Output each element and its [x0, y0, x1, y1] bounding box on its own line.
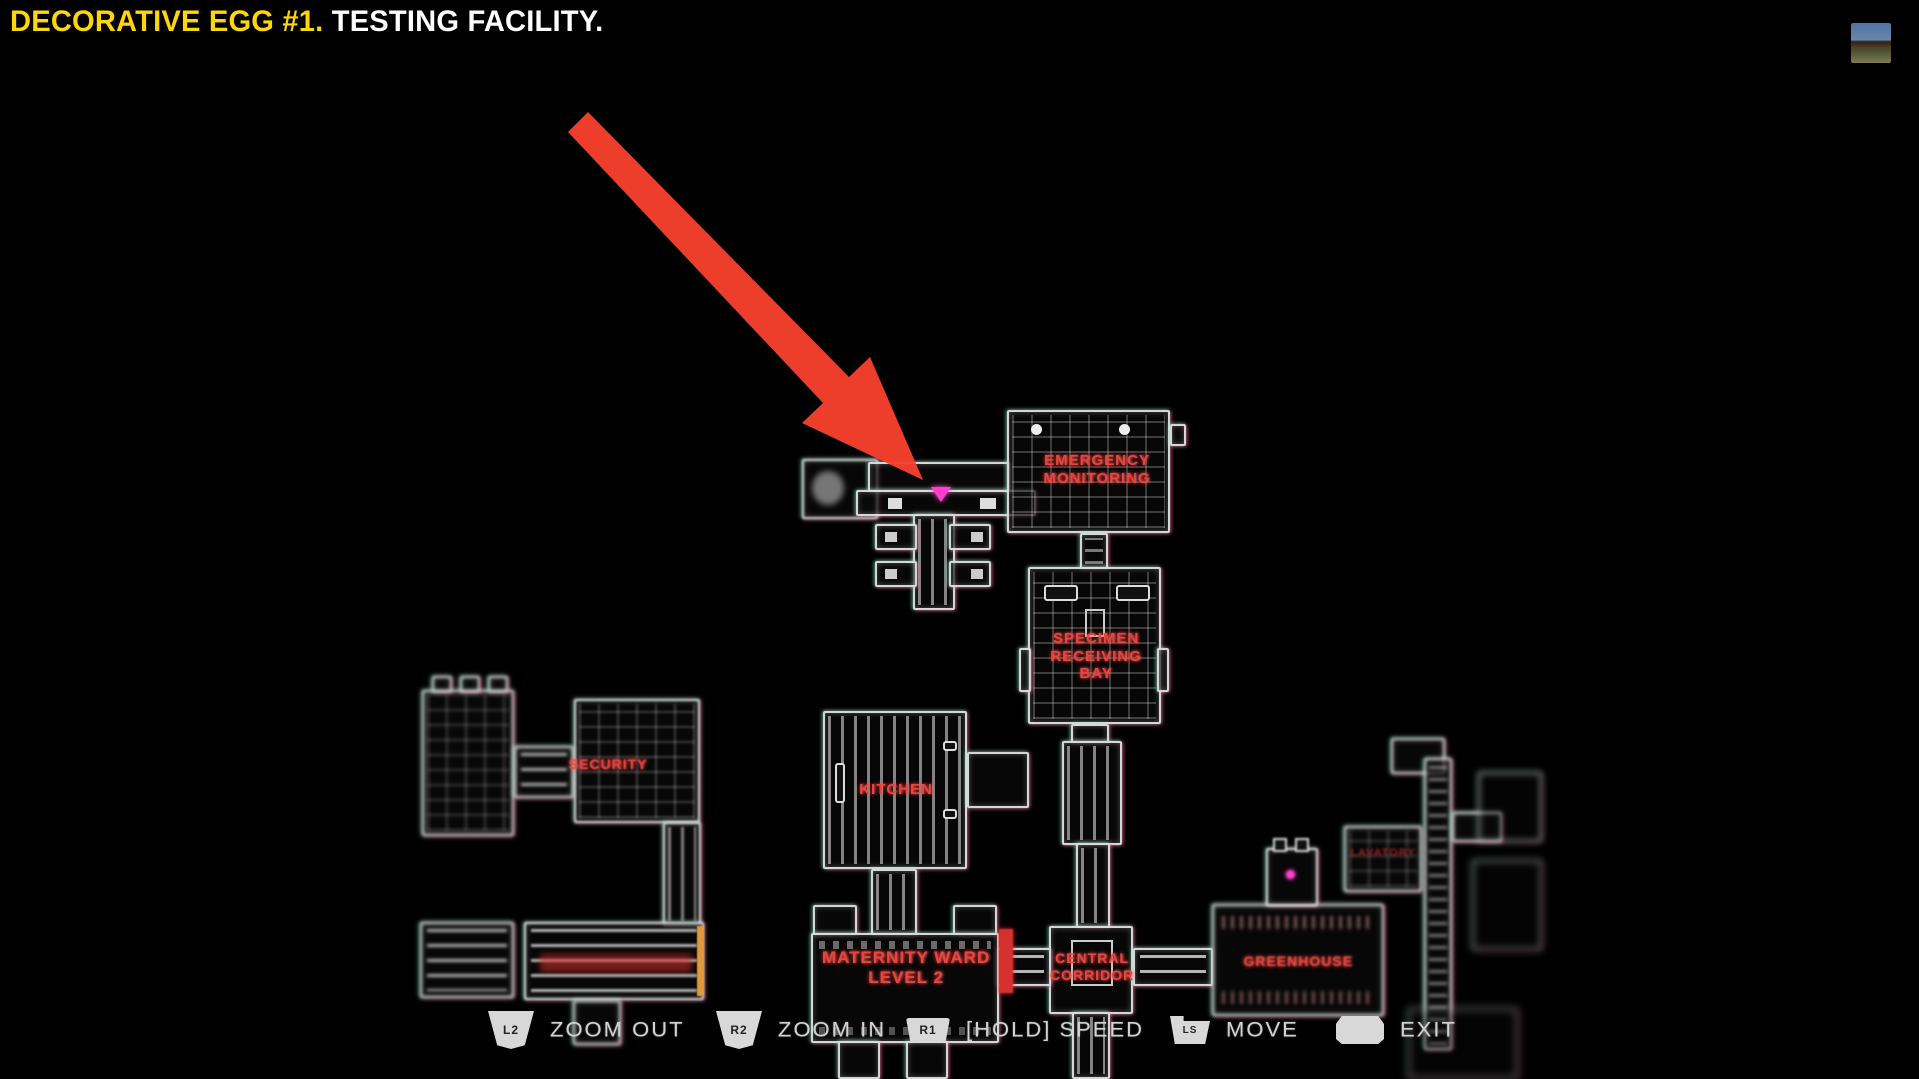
l2-trigger-icon: L2 — [488, 1011, 534, 1049]
hint-label: EXIT — [1400, 1018, 1457, 1043]
picture-in-picture-thumbnail — [1851, 23, 1891, 63]
hint-hold-speed: R1 [HOLD] SPEED — [906, 1008, 1144, 1052]
hint-zoom-out: L2 ZOOM OUT — [488, 1008, 685, 1052]
hint-label: MOVE — [1226, 1018, 1299, 1043]
hint-label: ZOOM IN — [778, 1018, 886, 1043]
touchpad-icon — [1336, 1016, 1384, 1044]
hint-move: LS MOVE — [1170, 1008, 1299, 1052]
r1-bumper-icon: R1 — [906, 1018, 950, 1042]
hint-exit: EXIT — [1336, 1008, 1457, 1052]
title-highlight: DECORATIVE EGG #1. — [10, 5, 323, 38]
hint-label: ZOOM OUT — [550, 1018, 685, 1043]
control-hints-bar: L2 ZOOM OUT R2 ZOOM IN R1 [HOLD] SPEED L… — [0, 0, 1919, 1079]
title-rest: TESTING FACILITY. — [332, 5, 604, 38]
page-title: DECORATIVE EGG #1. TESTING FACILITY. — [10, 5, 603, 39]
hint-zoom-in: R2 ZOOM IN — [716, 1008, 886, 1052]
hint-label: [HOLD] SPEED — [966, 1018, 1144, 1043]
game-map-screen: DECORATIVE EGG #1. TESTING FACILITY. — [0, 0, 1919, 1079]
left-stick-icon: LS — [1170, 1016, 1210, 1044]
r2-trigger-icon: R2 — [716, 1011, 762, 1049]
